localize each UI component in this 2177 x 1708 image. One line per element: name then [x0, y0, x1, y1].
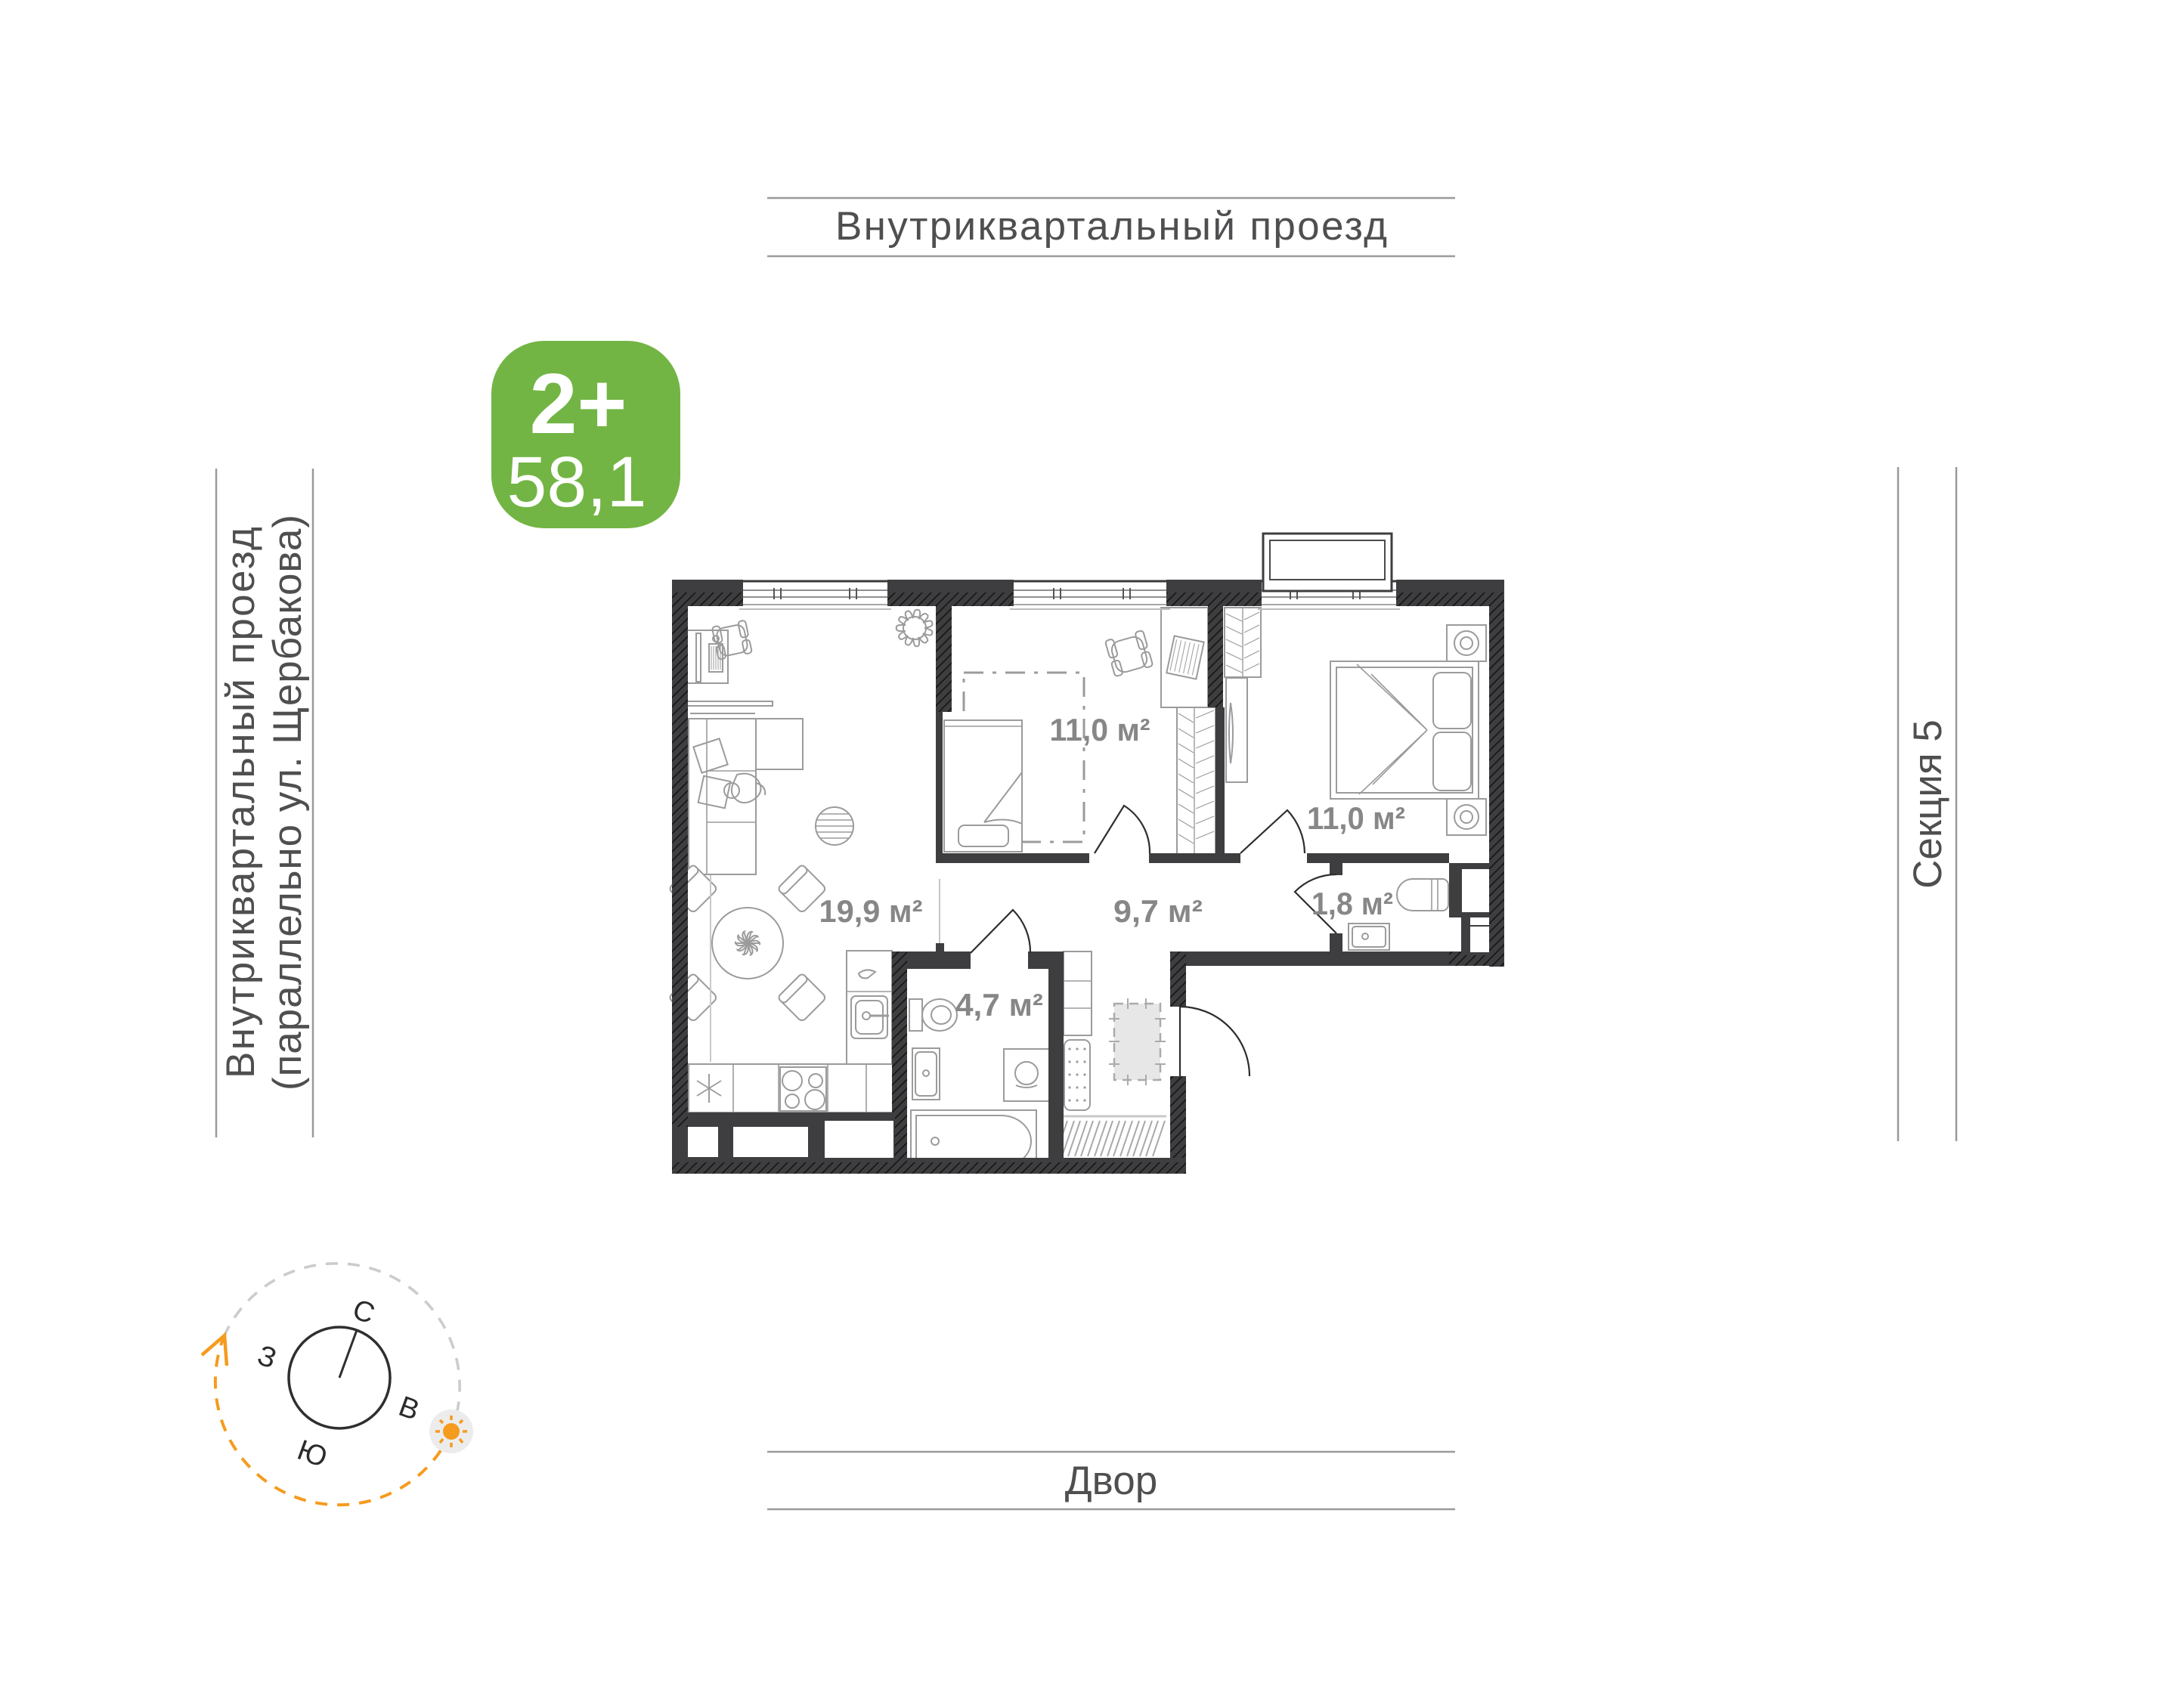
svg-text:19,9 м²: 19,9 м²	[819, 893, 923, 929]
svg-text:4,7 м²: 4,7 м²	[955, 987, 1043, 1023]
svg-text:Внутриквартальный проезд: Внутриквартальный проезд	[218, 527, 263, 1078]
svg-text:Секция 5: Секция 5	[1906, 719, 1950, 889]
svg-text:В: В	[395, 1391, 423, 1427]
svg-text:(параллельно ул. Щербакова): (параллельно ул. Щербакова)	[265, 515, 310, 1091]
svg-text:11,0 м²: 11,0 м²	[1307, 800, 1405, 836]
svg-text:2+: 2+	[530, 356, 627, 451]
svg-text:58,1: 58,1	[507, 442, 647, 522]
svg-text:Двор: Двор	[1065, 1459, 1157, 1503]
svg-text:Внутриквартальный проезд: Внутриквартальный проезд	[835, 204, 1387, 249]
svg-text:11,0 м²: 11,0 м²	[1050, 712, 1150, 747]
svg-text:З: З	[253, 1339, 280, 1375]
svg-text:С: С	[348, 1294, 379, 1331]
svg-text:9,7 м²: 9,7 м²	[1113, 893, 1203, 929]
svg-text:1,8 м²: 1,8 м²	[1311, 886, 1393, 921]
svg-text:Ю: Ю	[293, 1434, 331, 1474]
